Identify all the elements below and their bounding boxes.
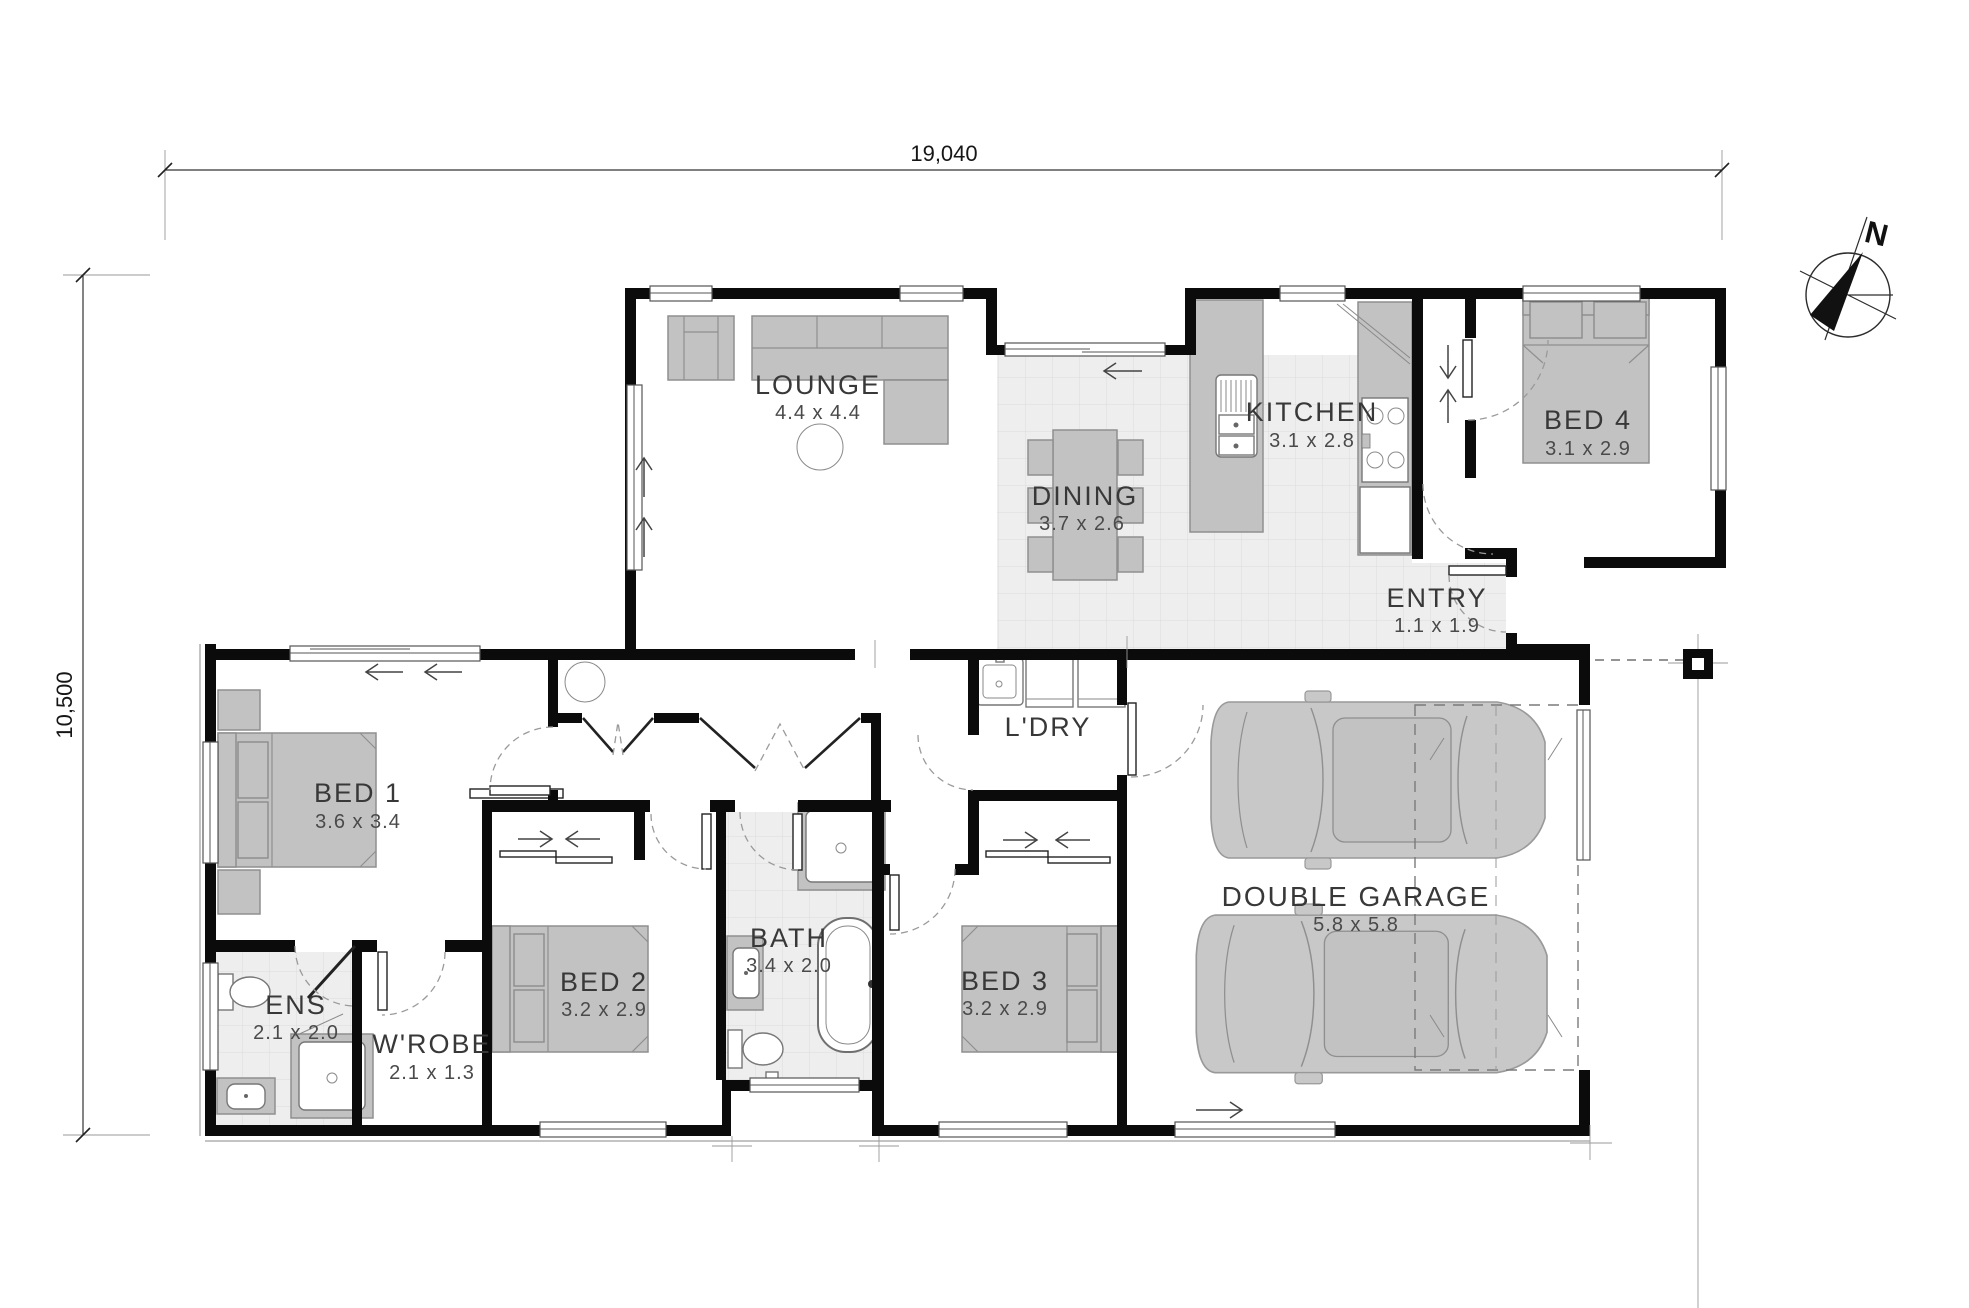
bed2-dims: 3.2 x 2.9	[561, 999, 647, 1021]
wardrobe-door	[378, 952, 445, 1015]
toilet-tank	[728, 1030, 742, 1068]
toilet-bowl	[743, 1033, 783, 1065]
garage-arrow-right	[1196, 1102, 1242, 1118]
wardrobe-label: W'ROBE	[372, 1029, 491, 1059]
porch-post	[1668, 634, 1728, 1308]
hall-arrow-up	[1440, 390, 1456, 423]
hall-arrow-down	[1440, 345, 1456, 378]
bed4-label: BED 4	[1544, 405, 1632, 435]
entry-label: ENTRY	[1386, 583, 1487, 613]
hall-arrow-left	[366, 664, 403, 680]
ensuite-label: ENS	[265, 990, 327, 1020]
hall-double-doors	[583, 718, 860, 771]
robe-arrow-right	[518, 831, 552, 847]
coffee-table	[797, 424, 843, 470]
bed3-door	[890, 869, 955, 934]
overall-width-dimension: 19,040	[910, 141, 977, 166]
ensuite-dims: 2.1 x 2.0	[253, 1022, 339, 1044]
bedside-table	[218, 870, 260, 914]
laundry-fixtures	[977, 652, 1125, 707]
bed2-door	[651, 814, 711, 869]
ensuite-window	[203, 963, 218, 1070]
lounge-dims: 4.4 x 4.4	[775, 402, 861, 424]
hall-light	[565, 662, 605, 702]
bedside-table	[218, 690, 260, 730]
lounge-label: LOUNGE	[755, 370, 881, 400]
bed1-dims: 3.6 x 3.4	[315, 811, 401, 833]
robe-arrow-left	[566, 831, 600, 847]
overall-depth-dimension: 10,500	[52, 671, 77, 738]
bath-dims: 3.4 x 2.0	[746, 955, 832, 977]
bed3-label: BED 3	[961, 966, 1049, 996]
laundry-door	[918, 735, 973, 790]
toilet-bowl	[230, 977, 270, 1007]
dining-slider	[1005, 343, 1165, 356]
bed2-label: BED 2	[560, 967, 648, 997]
kitchen-window	[1280, 286, 1345, 301]
garage-label: DOUBLE GARAGE	[1222, 881, 1491, 912]
entry-dims: 1.1 x 1.9	[1394, 615, 1480, 637]
garage-side-window	[1577, 710, 1590, 860]
wardrobe-dims: 2.1 x 1.3	[389, 1062, 475, 1084]
hall-arrow-left	[425, 664, 462, 680]
floor-plan-page: 19,040 10,500 N LOUNGE 4.4 x 4.4 DINING …	[0, 0, 1969, 1308]
bed3-dims: 3.2 x 2.9	[962, 998, 1048, 1020]
robe-arrow-left	[1056, 832, 1090, 848]
bed4-dims: 3.1 x 2.9	[1545, 438, 1631, 460]
kitchen-label: KITCHEN	[1246, 397, 1379, 427]
bed1-door	[490, 727, 553, 795]
bath-label: BATH	[750, 923, 828, 953]
dimension-left: 10,500	[52, 268, 150, 1142]
robe-arrow-right	[1003, 832, 1037, 848]
laundry-label: L'DRY	[1005, 712, 1092, 742]
dining-dims: 3.7 x 2.6	[1039, 513, 1125, 535]
dimension-top: 19,040	[158, 141, 1729, 240]
entry-hall-door-swing	[1423, 484, 1493, 554]
dining-label: DINING	[1032, 481, 1139, 511]
bed1-label: BED 1	[314, 778, 402, 808]
fridge-space	[1360, 487, 1410, 553]
kitchen-dims: 3.1 x 2.8	[1269, 430, 1355, 452]
compass-needle	[1810, 252, 1863, 331]
floor-plan-drawing: 19,040 10,500 N LOUNGE 4.4 x 4.4 DINING …	[0, 0, 1969, 1308]
north-compass-icon: N	[1800, 214, 1896, 340]
garage-internal-door	[1128, 703, 1203, 777]
garage-dims: 5.8 x 5.8	[1313, 914, 1399, 936]
